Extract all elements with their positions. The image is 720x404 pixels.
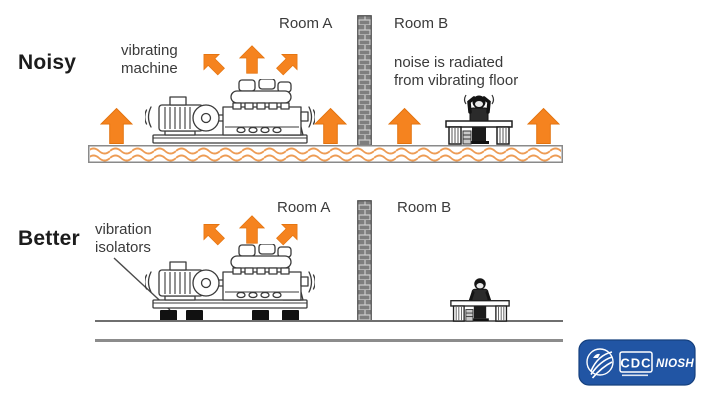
svg-text:CDC: CDC: [620, 356, 651, 371]
room-a-label: Room A: [277, 199, 330, 217]
cdc-niosh-logo: CDC NIOSH: [578, 339, 696, 386]
person-working: [450, 275, 510, 322]
brick-wall: [357, 200, 372, 322]
up-arrow-icon: [239, 214, 265, 245]
cdc-wordmark: CDC: [620, 352, 652, 376]
better-label: Better: [18, 227, 80, 251]
room-b-label: Room B: [397, 199, 451, 217]
niosh-wordmark: NIOSH: [656, 358, 694, 370]
noise-control-diagram: Noisy vibrating machine Room A Room B no…: [0, 0, 720, 404]
floor-bottom-line: [95, 339, 563, 342]
machine-on-isolators-illustration: [145, 244, 315, 310]
vibration-isolators-label: vibration isolators: [95, 221, 152, 257]
